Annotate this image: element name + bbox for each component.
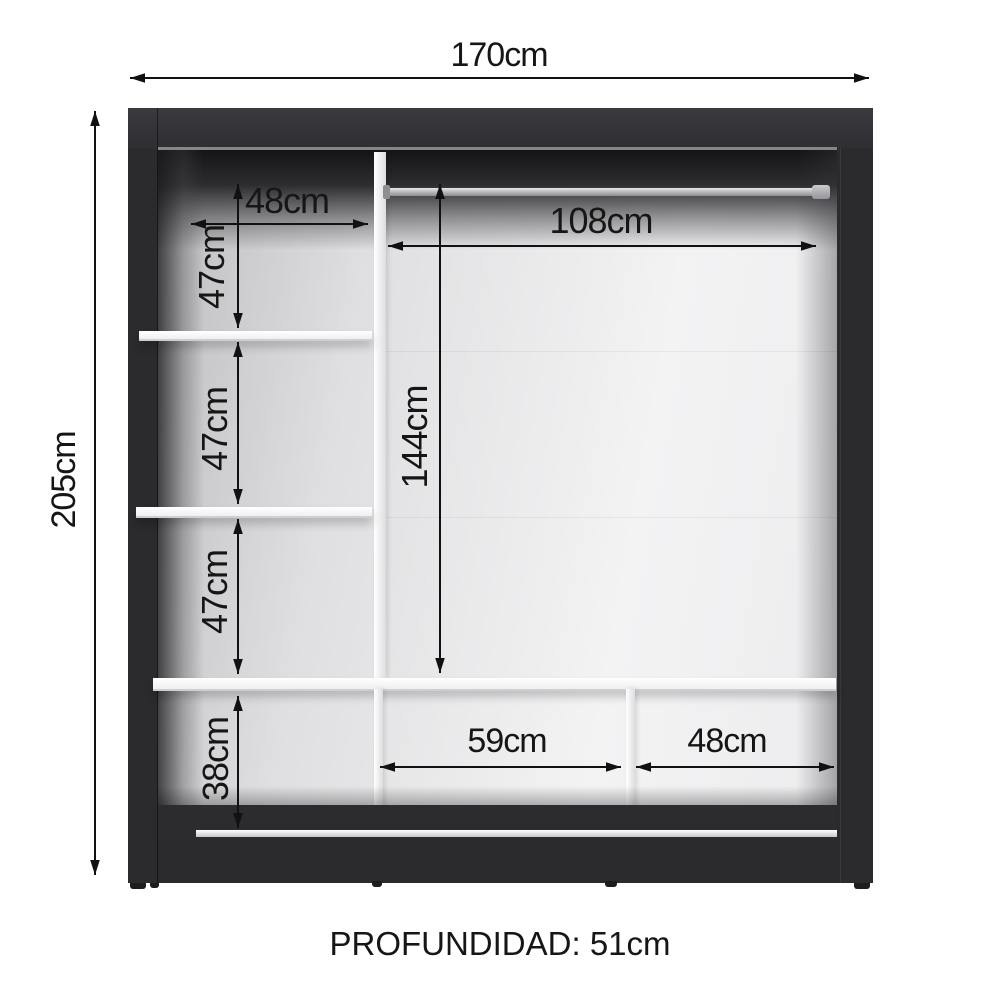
dimension-lines — [0, 0, 1000, 1000]
wardrobe-dimension-diagram: 170cm 205cm 48cm 47cm 47cm 47cm 38cm 108… — [0, 0, 1000, 1000]
label-total-width: 170cm — [450, 38, 547, 72]
label-total-height: 205cm — [47, 431, 81, 528]
label-bottom-middle: 59cm — [467, 724, 546, 758]
label-left-bottom: 38cm — [198, 717, 234, 801]
label-bottom-right: 48cm — [687, 724, 766, 758]
label-left-section-2: 47cm — [197, 387, 233, 471]
label-left-section-1: 47cm — [194, 225, 230, 309]
depth-caption: PROFUNDIDAD: 51cm — [329, 925, 670, 963]
label-rod-width: 108cm — [549, 203, 652, 239]
label-top-left-width: 48cm — [245, 183, 329, 219]
label-left-section-3: 47cm — [197, 550, 233, 634]
label-hanging-height: 144cm — [397, 385, 433, 488]
